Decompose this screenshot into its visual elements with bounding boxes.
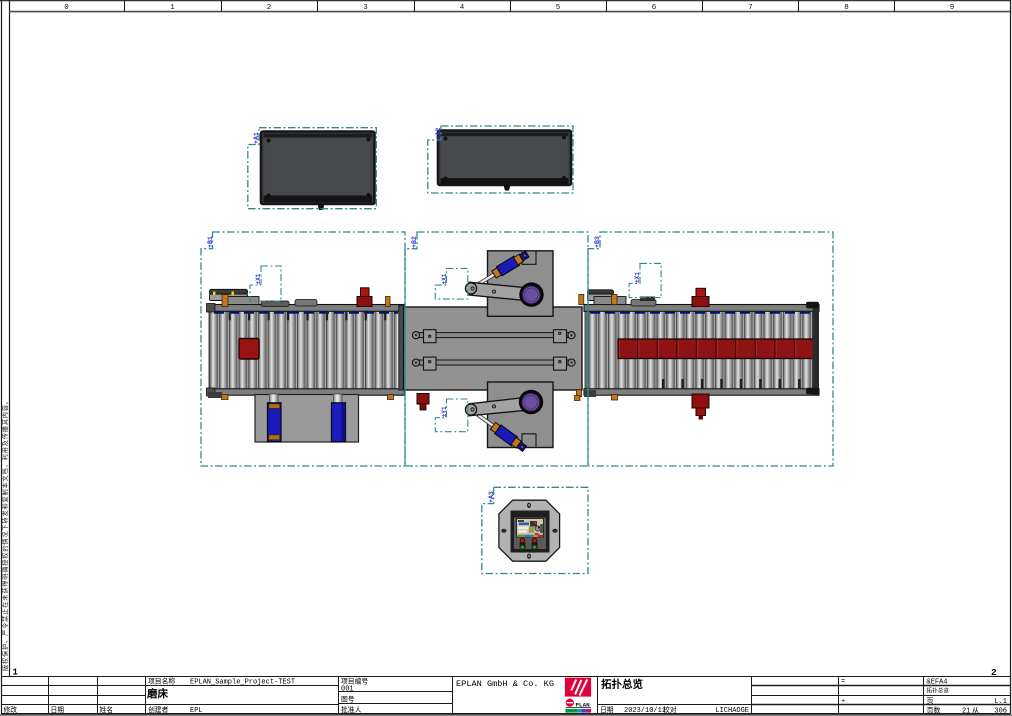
svg-text:±Y1: ±Y1	[441, 406, 448, 417]
svg-text:磨床: 磨床	[146, 687, 168, 701]
svg-text:EPL: EPL	[190, 707, 203, 715]
svg-text:页: 页	[927, 697, 934, 706]
svg-text:批准人: 批准人	[341, 705, 362, 715]
svg-text:LICHAOGE: LICHAOGE	[715, 707, 749, 715]
svg-text:+A2: +A2	[435, 128, 442, 140]
svg-text:±X1: ±X1	[634, 272, 641, 283]
svg-text:306: 306	[994, 708, 1007, 716]
svg-text:从: 从	[972, 707, 979, 716]
svg-text:EPLAN_Sample_Project-TEST: EPLAN_Sample_Project-TEST	[190, 679, 295, 687]
svg-text:创建者: 创建者	[148, 705, 169, 715]
svg-text:7: 7	[748, 4, 753, 12]
svg-text:+A3: +A3	[488, 491, 495, 503]
svg-text:4: 4	[460, 4, 465, 12]
svg-text:姓名: 姓名	[100, 705, 114, 715]
svg-text:9: 9	[950, 4, 955, 12]
svg-text:5: 5	[556, 4, 561, 12]
svg-text:±X1: ±X1	[441, 273, 448, 284]
svg-text:项目名称: 项目名称	[148, 677, 175, 687]
svg-text:L.1: L.1	[994, 698, 1007, 706]
svg-text:EPLAN GmbH & Co. KG: EPLAN GmbH & Co. KG	[456, 679, 554, 689]
svg-text:=: =	[841, 678, 845, 686]
svg-text:1: 1	[170, 4, 175, 12]
svg-text:+B3: +B3	[594, 236, 601, 248]
svg-text:拓扑总览: 拓扑总览	[927, 687, 950, 695]
svg-text:+B1: +B1	[207, 236, 214, 248]
svg-text:&EFA4: &EFA4	[927, 679, 948, 687]
svg-text:2: 2	[267, 4, 272, 12]
svg-text:拓扑总览: 拓扑总览	[601, 678, 643, 692]
svg-text:6: 6	[652, 4, 657, 12]
svg-text:日期: 日期	[600, 706, 614, 715]
svg-text:3: 3	[363, 4, 368, 12]
svg-text:+A1: +A1	[253, 132, 260, 144]
svg-text:日期: 日期	[51, 706, 65, 715]
svg-text:2023/10/11: 2023/10/11	[624, 707, 666, 715]
svg-text:版权保护。严令禁止在未获得明确授权的情况下转发和复制本文档、: 版权保护。严令禁止在未获得明确授权的情况下转发和复制本文档、利用及传播其内容。	[2, 398, 10, 671]
svg-text:±X1: ±X1	[255, 273, 262, 284]
svg-text:+B2: +B2	[411, 236, 418, 248]
svg-text:+: +	[841, 698, 845, 706]
svg-text:001: 001	[341, 686, 354, 694]
svg-text:8: 8	[844, 4, 849, 12]
svg-text:修改: 修改	[4, 705, 18, 715]
svg-text:21: 21	[962, 708, 970, 716]
svg-text:0: 0	[64, 4, 69, 12]
svg-text:页数: 页数	[927, 706, 941, 716]
svg-text:图号: 图号	[341, 696, 355, 705]
